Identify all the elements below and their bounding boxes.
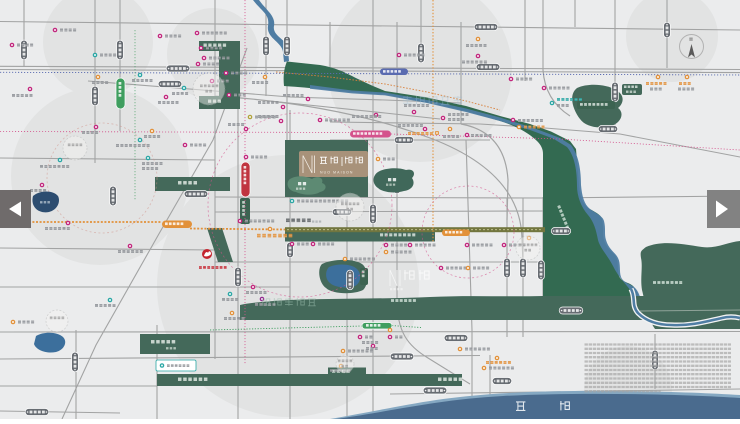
svg-text:NUO MAISON: NUO MAISON: [320, 171, 354, 175]
